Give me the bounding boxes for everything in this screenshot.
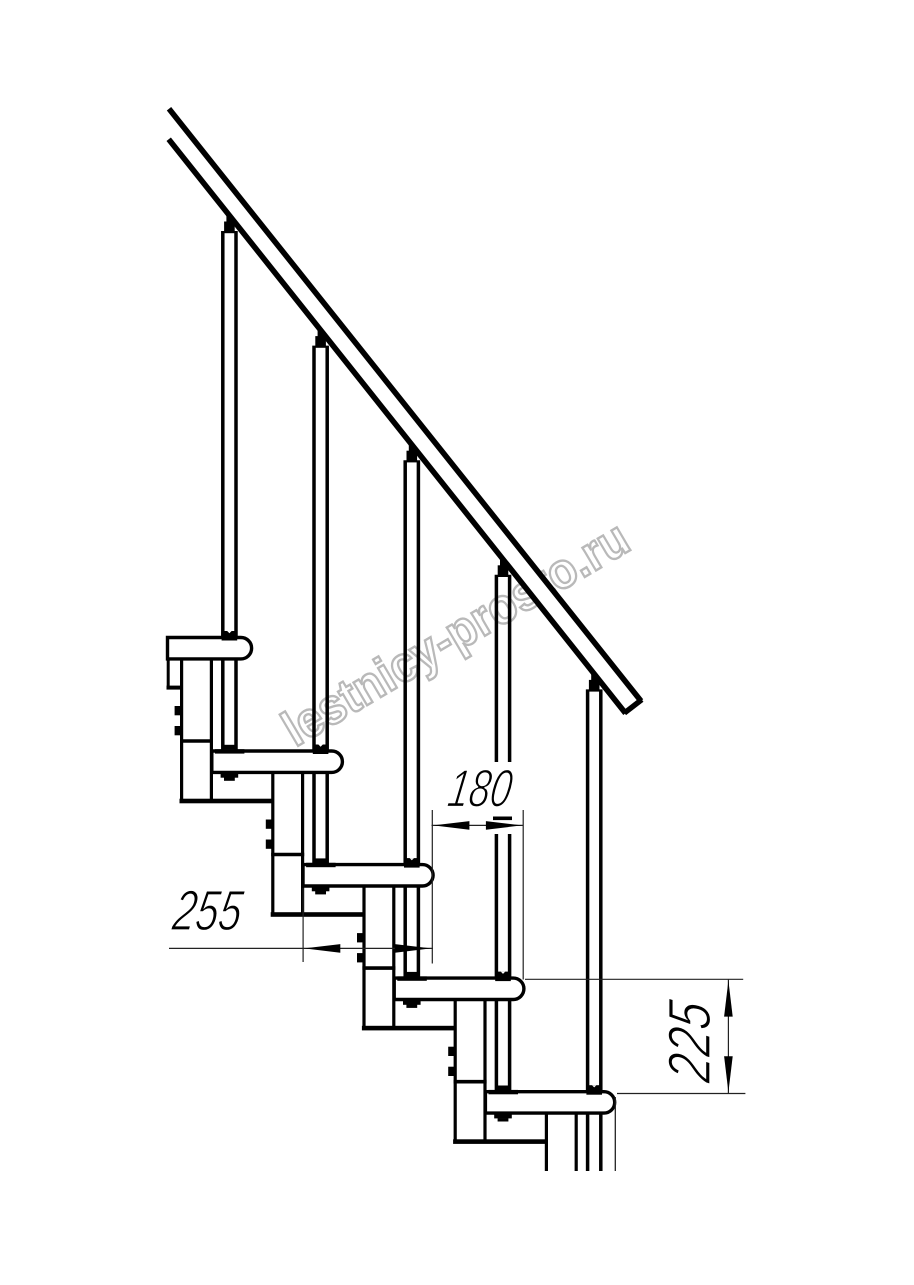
svg-text:180: 180 [444,760,517,819]
svg-text:225: 225 [655,996,723,1087]
svg-text:255: 255 [168,879,248,943]
